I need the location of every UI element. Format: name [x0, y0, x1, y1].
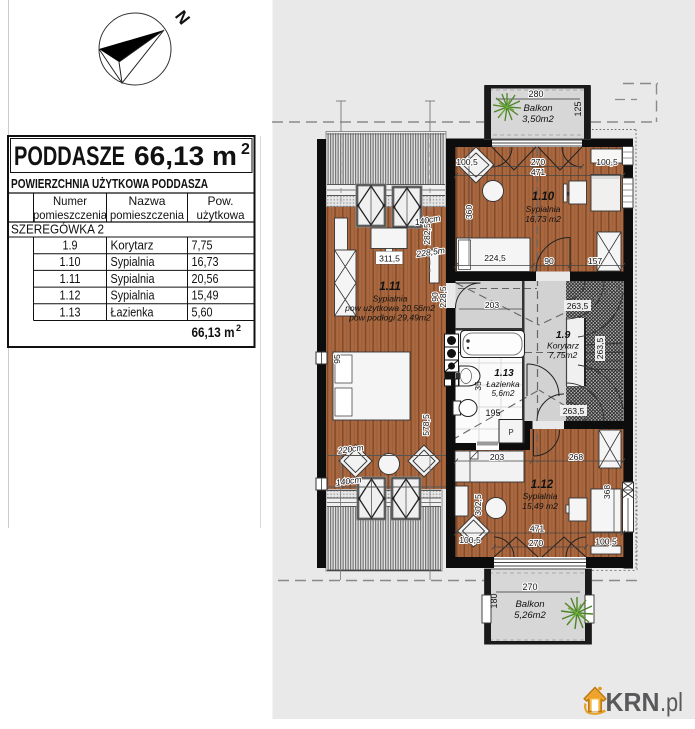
svg-text:Korytarz: Korytarz [547, 341, 580, 351]
svg-text:Sypialnia: Sypialnia [111, 255, 155, 269]
svg-text:7,75m2: 7,75m2 [549, 350, 578, 360]
svg-text:270: 270 [522, 582, 537, 592]
svg-text:157: 157 [588, 256, 603, 266]
svg-text:2: 2 [241, 141, 250, 158]
svg-text:1.10: 1.10 [532, 191, 555, 203]
svg-text:Nazwa: Nazwa [129, 194, 166, 208]
svg-text:100,5: 100,5 [595, 537, 617, 547]
svg-text:100,5: 100,5 [456, 157, 478, 167]
svg-text:1.11: 1.11 [60, 272, 81, 286]
svg-text:PODDASZE: PODDASZE [14, 141, 125, 171]
svg-text:1.9: 1.9 [63, 239, 78, 253]
svg-text:578,5: 578,5 [421, 414, 431, 436]
svg-text:180: 180 [489, 593, 499, 608]
svg-text:15,49 m2: 15,49 m2 [522, 501, 558, 511]
svg-text:KRN: KRN [606, 687, 660, 717]
svg-text:311,5: 311,5 [379, 254, 400, 264]
svg-text:Sypialnia: Sypialnia [526, 204, 561, 214]
svg-text:282,5: 282,5 [422, 223, 432, 245]
svg-text:203: 203 [485, 300, 500, 310]
svg-text:1.11: 1.11 [379, 281, 401, 293]
svg-text:POWIERZCHNIA UŻYTKOWA PODDASZA: POWIERZCHNIA UŻYTKOWA PODDASZA [11, 176, 208, 191]
svg-text:125: 125 [573, 101, 583, 116]
svg-text:471: 471 [530, 524, 545, 534]
svg-text:270: 270 [529, 538, 544, 548]
svg-text:SZEREGÓWKA 2: SZEREGÓWKA 2 [11, 222, 104, 237]
svg-text:263,5: 263,5 [567, 301, 589, 311]
svg-text:16,73: 16,73 [192, 255, 219, 269]
svg-text:268: 268 [569, 452, 584, 462]
svg-text:100,5: 100,5 [459, 535, 481, 545]
svg-text:Sypialnia: Sypialnia [523, 491, 558, 501]
svg-text:Pow.: Pow. [208, 194, 234, 208]
svg-text:203: 203 [490, 452, 505, 462]
svg-text:.pl: .pl [660, 687, 683, 717]
svg-text:35: 35 [473, 381, 483, 391]
svg-text:95: 95 [332, 354, 342, 364]
svg-text:66,13 m: 66,13 m [134, 141, 237, 171]
svg-text:471: 471 [531, 167, 546, 177]
svg-text:100,5: 100,5 [596, 157, 618, 167]
svg-text:360: 360 [464, 205, 474, 220]
svg-text:1.12: 1.12 [60, 289, 81, 303]
svg-text:263,5: 263,5 [595, 338, 605, 360]
svg-text:66,13 m: 66,13 m [192, 325, 235, 340]
svg-text:P: P [508, 428, 513, 437]
svg-text:368: 368 [602, 485, 612, 500]
svg-text:270: 270 [531, 157, 546, 167]
svg-text:użytkowa: użytkowa [197, 208, 245, 222]
svg-text:Sypialnia: Sypialnia [111, 289, 155, 303]
svg-text:1.10: 1.10 [60, 255, 81, 269]
svg-text:1.12: 1.12 [531, 479, 554, 491]
svg-text:Balkon: Balkon [515, 599, 544, 610]
svg-text:Balkon: Balkon [523, 103, 552, 114]
svg-text:263,5: 263,5 [563, 406, 585, 416]
svg-text:pomieszczenia: pomieszczenia [110, 208, 184, 222]
svg-text:5,60: 5,60 [192, 305, 213, 319]
svg-text:15,49: 15,49 [192, 289, 219, 303]
svg-text:20,56: 20,56 [192, 272, 219, 286]
svg-text:Sypialnia: Sypialnia [111, 272, 155, 286]
svg-text:224,5: 224,5 [484, 253, 506, 263]
svg-text:2: 2 [236, 323, 241, 333]
svg-text:7,75: 7,75 [192, 239, 213, 253]
svg-text:16,73 m2: 16,73 m2 [525, 214, 561, 224]
svg-text:pow użytkowa 20,56m2: pow użytkowa 20,56m2 [344, 303, 435, 313]
svg-text:195: 195 [485, 408, 500, 418]
svg-text:3,50m2: 3,50m2 [522, 114, 554, 125]
svg-text:5,26m2: 5,26m2 [514, 610, 546, 621]
svg-text:1.13: 1.13 [494, 368, 514, 379]
svg-text:1.9: 1.9 [556, 329, 571, 341]
svg-text:pomieszczenia: pomieszczenia [33, 208, 107, 222]
svg-text:228,5: 228,5 [438, 286, 448, 308]
svg-text:pow podłogi 29,49m2: pow podłogi 29,49m2 [348, 313, 431, 323]
svg-text:Sypialnia: Sypialnia [373, 294, 408, 304]
svg-text:280: 280 [528, 89, 543, 99]
svg-text:1.13: 1.13 [60, 305, 81, 319]
svg-text:5,6m2: 5,6m2 [491, 388, 514, 398]
svg-text:Korytarz: Korytarz [111, 239, 154, 253]
svg-text:302,5: 302,5 [473, 494, 483, 516]
svg-text:90: 90 [544, 256, 554, 266]
svg-text:Łazienka: Łazienka [111, 305, 154, 319]
svg-text:Numer: Numer [53, 194, 87, 208]
